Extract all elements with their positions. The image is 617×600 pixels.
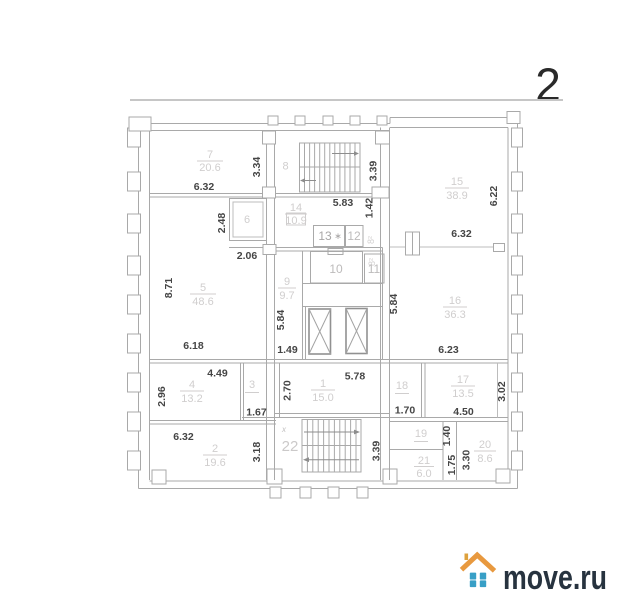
svg-text:7: 7	[207, 149, 213, 161]
svg-text:17: 17	[457, 374, 469, 386]
svg-text:1.49: 1.49	[277, 344, 298, 356]
svg-text:12: 12	[347, 229, 361, 243]
svg-text:20.6: 20.6	[199, 162, 220, 174]
svg-text:9.7: 9.7	[279, 290, 294, 302]
svg-text:5.84: 5.84	[388, 294, 400, 315]
svg-text:22: 22	[282, 438, 299, 455]
svg-text:3.30: 3.30	[461, 450, 473, 471]
svg-text:15: 15	[451, 176, 463, 188]
svg-text:48.6: 48.6	[192, 296, 213, 308]
svg-text:3.34: 3.34	[251, 157, 263, 178]
svg-text:∗: ∗	[334, 231, 342, 241]
svg-text:2.70: 2.70	[282, 380, 294, 401]
svg-text:8.6: 8.6	[477, 453, 492, 465]
svg-text:8.71: 8.71	[163, 278, 175, 299]
svg-text:16: 16	[449, 295, 461, 307]
svg-text:19.6: 19.6	[204, 457, 225, 469]
svg-text:9: 9	[284, 276, 290, 288]
svg-text:6.32: 6.32	[451, 228, 472, 240]
svg-text:15.0: 15.0	[312, 392, 333, 404]
svg-text:1: 1	[320, 378, 326, 390]
svg-text:1.75: 1.75	[446, 455, 458, 476]
svg-text:19: 19	[415, 428, 427, 440]
svg-text:14: 14	[290, 202, 302, 214]
svg-text:6: 6	[244, 214, 250, 226]
svg-text:3.39: 3.39	[371, 441, 383, 462]
svg-text:1.42: 1.42	[364, 198, 376, 219]
svg-text:5.78: 5.78	[345, 371, 366, 383]
svg-text:3.02: 3.02	[496, 381, 508, 402]
svg-text:18: 18	[396, 380, 408, 392]
svg-text:13.2: 13.2	[181, 393, 202, 405]
svg-text:3: 3	[249, 379, 255, 391]
svg-text:13.5: 13.5	[452, 388, 473, 400]
svg-text:2: 2	[212, 443, 218, 455]
svg-text:5.83: 5.83	[333, 197, 354, 209]
svg-text:2.48: 2.48	[216, 213, 228, 234]
svg-text:6.22: 6.22	[488, 186, 500, 207]
svg-text:6.18: 6.18	[183, 340, 204, 352]
svg-text:5.84: 5.84	[275, 310, 287, 331]
svg-text:4.49: 4.49	[207, 368, 228, 380]
svg-text:6.0: 6.0	[416, 468, 431, 480]
svg-text:20: 20	[479, 439, 491, 451]
svg-text:10: 10	[329, 262, 343, 276]
svg-text:5: 5	[200, 282, 206, 294]
svg-text:move.ru: move.ru	[503, 559, 607, 597]
svg-text:2.96: 2.96	[156, 386, 168, 407]
svg-text:38.9: 38.9	[446, 190, 467, 202]
svg-text:1.40: 1.40	[441, 426, 453, 447]
svg-text:6.32: 6.32	[173, 431, 194, 443]
svg-text:1.67: 1.67	[246, 407, 267, 419]
svg-text:2: 2	[535, 59, 561, 111]
svg-text:4.50: 4.50	[453, 406, 474, 418]
svg-text:36.3: 36.3	[444, 309, 465, 321]
svg-text:8²: 8²	[366, 236, 376, 244]
svg-text:21: 21	[418, 455, 430, 467]
svg-text:2.06: 2.06	[237, 250, 258, 262]
svg-text:11: 11	[368, 262, 381, 276]
svg-text:6.23: 6.23	[438, 344, 459, 356]
svg-text:1.70: 1.70	[395, 405, 416, 417]
svg-text:6.32: 6.32	[194, 181, 215, 193]
svg-text:4: 4	[189, 379, 195, 391]
svg-text:8: 8	[282, 161, 288, 173]
svg-text:13: 13	[318, 229, 332, 243]
svg-text:3.39: 3.39	[368, 161, 380, 182]
svg-text:3.18: 3.18	[251, 442, 263, 463]
